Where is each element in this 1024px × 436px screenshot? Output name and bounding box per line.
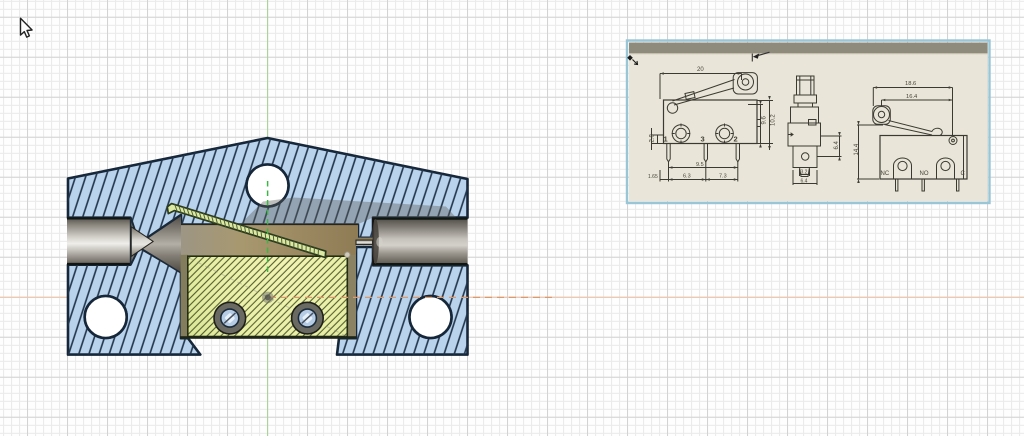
svg-text:3: 3 (701, 135, 705, 144)
svg-text:18.6: 18.6 (905, 81, 916, 87)
svg-text:16.4: 16.4 (906, 94, 918, 100)
svg-text:3.2: 3.2 (801, 170, 808, 176)
svg-text:9.6: 9.6 (762, 115, 768, 124)
svg-text:20: 20 (697, 67, 704, 73)
svg-text:2: 2 (734, 135, 738, 144)
svg-text:10.2: 10.2 (771, 114, 777, 126)
svg-text:2.8: 2.8 (650, 133, 656, 142)
svg-text:6.3: 6.3 (683, 174, 691, 180)
svg-text:6.4: 6.4 (834, 140, 840, 149)
svg-text:7.3: 7.3 (719, 174, 727, 180)
svg-text:6.4: 6.4 (801, 179, 808, 185)
svg-text:9.5: 9.5 (696, 162, 704, 168)
svg-text:1: 1 (664, 135, 668, 144)
svg-text:NC: NC (881, 171, 890, 177)
svg-text:NO: NO (920, 171, 929, 177)
svg-text:14.4: 14.4 (854, 143, 860, 155)
svg-text:C: C (961, 171, 966, 177)
svg-text:1.65: 1.65 (648, 174, 658, 180)
